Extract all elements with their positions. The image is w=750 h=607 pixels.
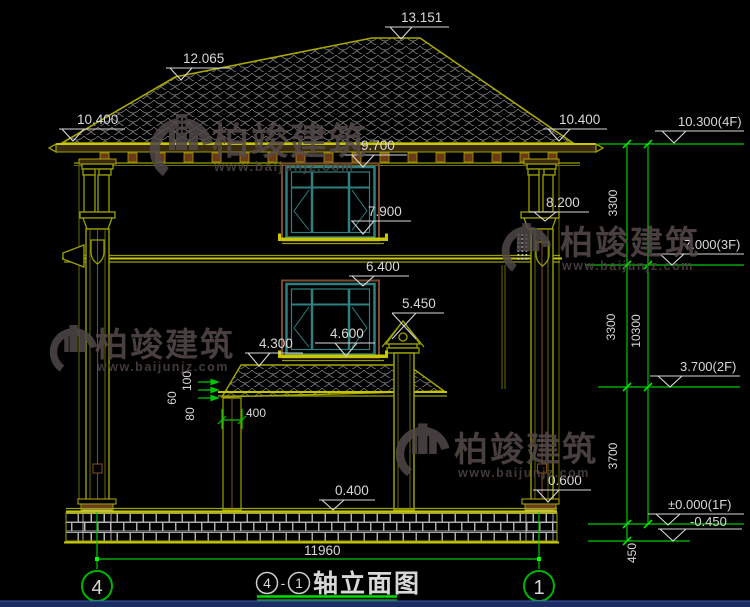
lower-window — [278, 281, 388, 361]
watermark-url: www.baijunjz.com — [457, 466, 590, 480]
window-sill — [278, 355, 388, 359]
dim-10300: 10300 — [629, 314, 643, 348]
watermark-url: www.baijunjz.com — [96, 360, 229, 374]
title-text: 轴立面图 — [313, 569, 421, 598]
watermark-bottom: 柏竣建筑 www.baijunjz.com — [400, 423, 598, 480]
label-porch-cap: 5.450 — [402, 296, 436, 311]
label-window3-sill: 7.900 — [368, 204, 402, 219]
dim-11960: 11960 — [304, 543, 341, 558]
label-level-1f: ±0.000(1F) — [668, 497, 732, 512]
base-plinth — [64, 509, 559, 543]
porch-post — [223, 398, 241, 510]
watermark-name: 柏竣建筑 — [212, 120, 368, 162]
label-window2-sill: 4.600 — [330, 326, 364, 341]
cad-canvas[interactable]: 4 1 3300 3300 10300 3700 450 — [0, 0, 750, 607]
dim-3300-middle: 3300 — [604, 313, 618, 340]
floor-band — [62, 256, 562, 263]
label-porch-eave: 4.300 — [259, 336, 293, 351]
dim-450: 450 — [625, 543, 639, 563]
label-eave-right: 10.400 — [559, 112, 600, 127]
dim-3300-upper: 3300 — [606, 189, 620, 216]
dim-60: 60 — [165, 391, 179, 405]
watermark-name: 柏竣建筑 — [560, 224, 700, 261]
label-ridge-left: 12.065 — [183, 51, 224, 66]
label-window2-head: 6.400 — [366, 259, 400, 274]
watermark-url: www.baijunjz.com — [213, 159, 355, 174]
watermark-name: 柏竣建筑 — [454, 430, 598, 469]
axis-number-left: 4 — [91, 577, 102, 599]
title-bubble-right-num: 1 — [295, 575, 303, 591]
label-level-below: -0.450 — [690, 514, 727, 529]
axis-number-right: 1 — [533, 577, 544, 599]
cad-viewport[interactable]: 4 1 3300 3300 10300 3700 450 — [0, 0, 750, 607]
window-sill — [278, 238, 388, 242]
watermark-url: www.baijunjz.com — [561, 259, 694, 273]
title-separator: - — [281, 575, 286, 591]
dim-3700: 3700 — [606, 442, 620, 469]
porch-column — [382, 321, 424, 510]
watermark-name: 柏竣建筑 — [95, 326, 235, 363]
band-bracket — [63, 245, 84, 267]
label-capital-right: 8.200 — [546, 195, 580, 210]
label-ridge-main: 13.151 — [401, 10, 442, 25]
dim-400: 400 — [246, 406, 266, 420]
title-bubble-left-num: 4 — [263, 575, 271, 591]
label-level-2f: 3.700(2F) — [680, 359, 736, 374]
floor-level-markers: 10.300(4F) 7.000(3F) 3.700(2F) ±0.000(1F… — [648, 114, 744, 541]
label-eave-left: 10.400 — [77, 112, 118, 127]
dim-80: 80 — [183, 407, 197, 421]
label-level-4f: 10.300(4F) — [678, 114, 742, 129]
drawing-title: 4 1 - 轴立面图 — [257, 569, 422, 600]
bottom-bar — [0, 601, 750, 607]
label-plinth-top: 0.400 — [335, 483, 369, 498]
watermark-left: 柏竣建筑 www.baijunjz.com — [54, 325, 235, 374]
